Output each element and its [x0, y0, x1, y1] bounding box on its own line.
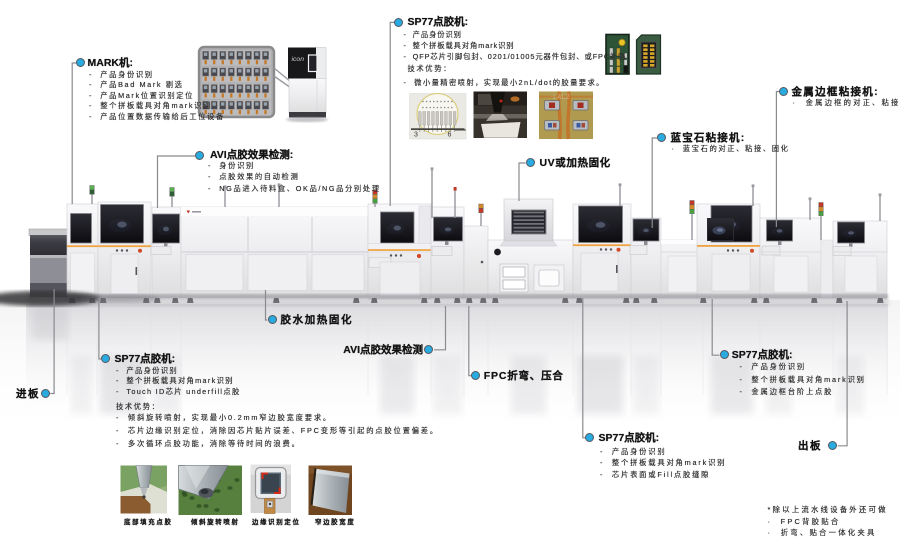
svg-text:icon: icon: [292, 56, 305, 63]
svg-text:L4L2: L4L2: [553, 92, 570, 101]
svg-text:6: 6: [448, 132, 452, 139]
svg-text:3: 3: [414, 132, 418, 139]
